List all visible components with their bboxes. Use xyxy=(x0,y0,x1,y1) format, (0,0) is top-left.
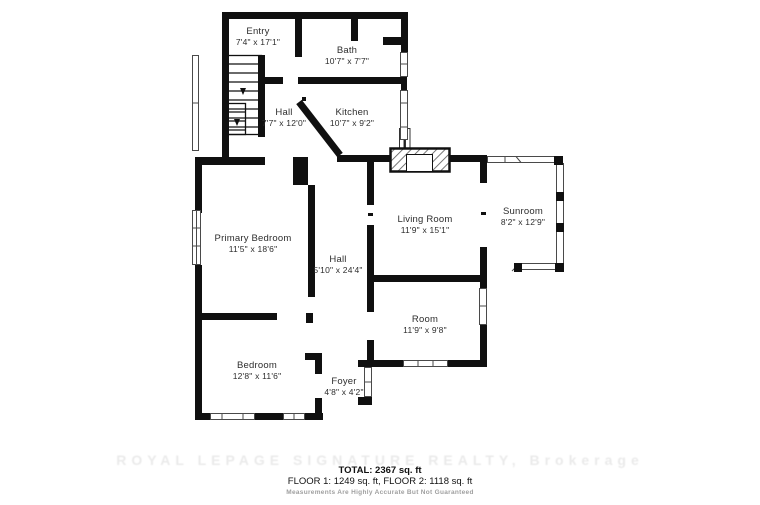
svg-text:Hall: Hall xyxy=(275,107,292,118)
svg-text:Hall: Hall xyxy=(329,254,346,265)
floor-areas-text: FLOOR 1: 1249 sq. ft, FLOOR 2: 1118 sq. … xyxy=(0,476,760,487)
room-label-kitchen: Kitchen 10'7" x 9'2" xyxy=(330,107,374,128)
svg-text:10'7" x 7'7": 10'7" x 7'7" xyxy=(325,56,369,66)
room-label-hall-main: Hall 5'10" x 24'4" xyxy=(313,254,362,275)
disclaimer-text: Measurements Are Highly Accurate But Not… xyxy=(0,489,760,496)
room-label-hall-upper: Hall 7'7" x 12'0" xyxy=(262,107,306,128)
room-label-sunroom: Sunroom 8'2" x 12'9" xyxy=(501,206,545,227)
svg-text:8'2" x 12'9": 8'2" x 12'9" xyxy=(501,217,545,227)
svg-text:7'4" x 17'1": 7'4" x 17'1" xyxy=(236,37,280,47)
total-area-text: TOTAL: 2367 sq. ft xyxy=(0,465,760,476)
svg-text:Room: Room xyxy=(412,314,438,325)
svg-text:Living Room: Living Room xyxy=(397,214,452,225)
staircase xyxy=(228,56,262,135)
floor-plan: Entry 7'4" x 17'1" Bath 10'7" x 7'7" Hal… xyxy=(0,0,760,505)
room-label-room: Room 11'9" x 9'8" xyxy=(403,314,447,335)
svg-text:10'7" x 9'2": 10'7" x 9'2" xyxy=(330,118,374,128)
svg-text:11'5" x 18'6": 11'5" x 18'6" xyxy=(229,244,278,254)
svg-text:11'9" x 15'1": 11'9" x 15'1" xyxy=(401,225,450,235)
room-label-foyer: Foyer 4'8" x 4'2" xyxy=(324,376,363,397)
svg-text:Kitchen: Kitchen xyxy=(335,107,368,118)
svg-text:5'10" x 24'4": 5'10" x 24'4" xyxy=(313,265,362,275)
room-label-primary-bedroom: Primary Bedroom 11'5" x 18'6" xyxy=(215,233,292,254)
svg-text:11'9" x 9'8": 11'9" x 9'8" xyxy=(403,325,447,335)
room-label-bath: Bath 10'7" x 7'7" xyxy=(325,45,369,66)
stair-direction-arrow xyxy=(234,119,240,126)
svg-text:Bedroom: Bedroom xyxy=(237,360,277,371)
svg-text:7'7" x 12'0": 7'7" x 12'0" xyxy=(262,118,306,128)
svg-text:Foyer: Foyer xyxy=(331,376,356,387)
svg-text:4'8" x 4'2": 4'8" x 4'2" xyxy=(324,387,363,397)
svg-text:Primary Bedroom: Primary Bedroom xyxy=(215,233,292,244)
svg-text:Bath: Bath xyxy=(337,45,357,56)
fireplace xyxy=(391,129,450,172)
room-label-bedroom: Bedroom 12'8" x 11'6" xyxy=(233,360,282,381)
svg-text:Entry: Entry xyxy=(246,26,269,37)
floor-plan-drawing: Entry 7'4" x 17'1" Bath 10'7" x 7'7" Hal… xyxy=(0,0,760,505)
room-label-entry: Entry 7'4" x 17'1" xyxy=(236,26,280,47)
room-label-living-room: Living Room 11'9" x 15'1" xyxy=(397,214,452,235)
svg-text:12'8" x 11'6": 12'8" x 11'6" xyxy=(233,371,282,381)
svg-text:Sunroom: Sunroom xyxy=(503,206,543,217)
